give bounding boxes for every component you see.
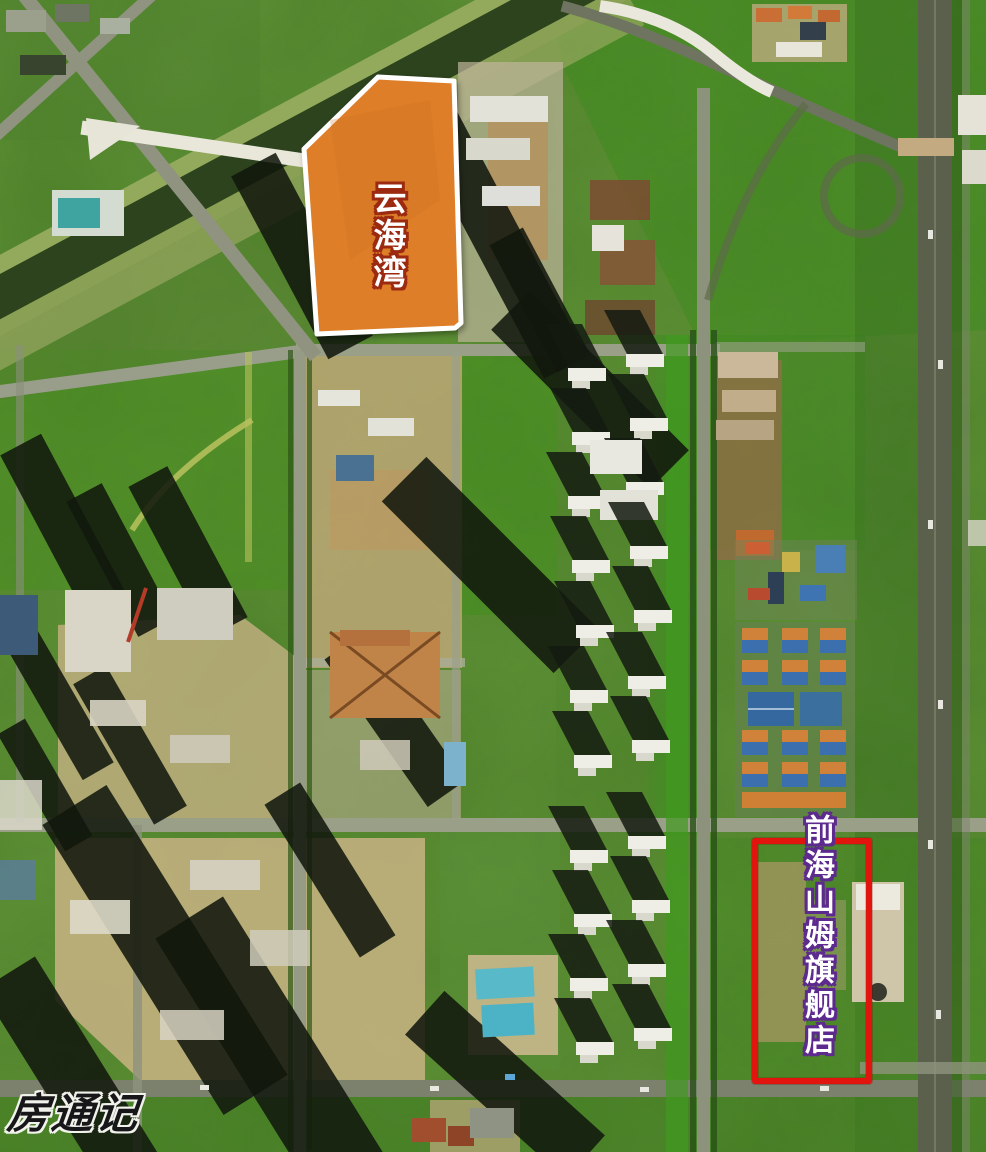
watermark: 房通记 xyxy=(5,1080,143,1141)
parcel-label: 云海湾 xyxy=(371,181,404,292)
annotated-satellite-image: 云海湾 前海山姆旗舰店 房通记 xyxy=(0,0,986,1152)
store-label: 前海山姆旗舰店 xyxy=(801,814,831,1059)
blue-orange-compound xyxy=(735,540,857,817)
